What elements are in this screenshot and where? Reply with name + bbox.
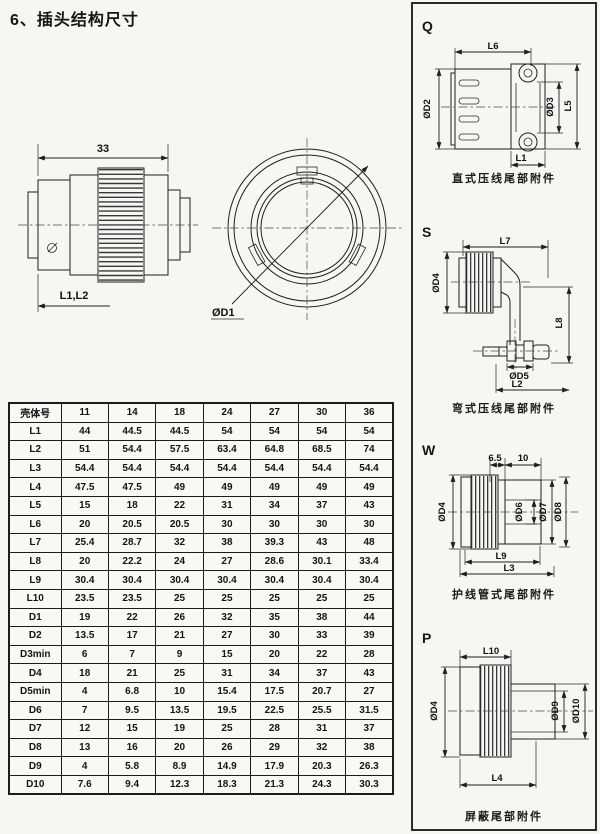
dimension-label: L6: [9, 515, 61, 534]
section-letter-p: P: [422, 630, 431, 646]
dimension-value: 49: [251, 478, 298, 497]
dimension-label: L3: [9, 459, 61, 478]
table-row: L354.454.454.454.454.454.454.4: [9, 459, 393, 478]
dimension-value: 27: [203, 627, 250, 646]
dimension-value: 27: [203, 552, 250, 571]
dim-label-l1l2: L1,L2: [60, 290, 89, 302]
dim-label-l3: L3: [503, 563, 514, 574]
dim-label-10: 10: [518, 453, 529, 464]
table-row: L515182231343743: [9, 496, 393, 515]
dimension-label: D3min: [9, 645, 61, 664]
dim-label-d4: ØD4: [431, 273, 442, 293]
dimension-value: 13.5: [156, 701, 203, 720]
dimension-value: 10: [156, 682, 203, 701]
dimension-value: 21: [156, 627, 203, 646]
dimension-value: 25: [203, 720, 250, 739]
dimension-value: 12.3: [156, 775, 203, 794]
dimension-value: 6: [61, 645, 108, 664]
dimension-value: 25: [203, 589, 250, 608]
dimension-label: D1: [9, 608, 61, 627]
dimension-value: 30.4: [203, 571, 250, 590]
dimension-value: 54.4: [346, 459, 393, 478]
dimension-value: 7: [108, 645, 155, 664]
dimension-value: 44.5: [156, 422, 203, 441]
dimension-label: L8: [9, 552, 61, 571]
dim-label-d2: ØD2: [422, 99, 433, 119]
dimension-value: 19: [156, 720, 203, 739]
straight-tail-drawing: L6 ØD2 ØD3 L5 L1: [413, 40, 597, 174]
dimension-value: 31: [203, 664, 250, 683]
dimension-value: 54: [298, 422, 345, 441]
dimension-value: 23.5: [108, 589, 155, 608]
dimension-value: 18.3: [203, 775, 250, 794]
dimension-value: 54: [251, 422, 298, 441]
dimension-label: L10: [9, 589, 61, 608]
caption-bent-tail: 弯式压线尾部附件: [413, 400, 595, 416]
column-header: 11: [61, 403, 108, 422]
dimension-value: 18: [61, 664, 108, 683]
dimension-value: 51: [61, 441, 108, 460]
dimension-value: 43: [346, 664, 393, 683]
bent-tail-drawing: L7 ØD4 L8 ØD5 L2: [413, 234, 597, 396]
table-row: L447.547.54949494949: [9, 478, 393, 497]
column-header: 30: [298, 403, 345, 422]
plug-side-view-drawing: 33 L1,L2: [12, 128, 212, 324]
dimension-value: 22: [108, 608, 155, 627]
dimension-value: 28: [251, 720, 298, 739]
dim-label-l5: L5: [563, 100, 574, 112]
dimension-value: 25: [346, 589, 393, 608]
dimension-label: D2: [9, 627, 61, 646]
dimension-label: D7: [9, 720, 61, 739]
column-header: 24: [203, 403, 250, 422]
dimension-value: 39.3: [251, 534, 298, 553]
dimension-value: 27: [346, 682, 393, 701]
dimension-value: 28.7: [108, 534, 155, 553]
dimension-value: 22.5: [251, 701, 298, 720]
dimension-label: L1: [9, 422, 61, 441]
dim-label-l7: L7: [499, 236, 510, 247]
dimension-value: 38: [298, 608, 345, 627]
dimension-value: 54.4: [61, 459, 108, 478]
dimension-value: 38: [203, 534, 250, 553]
dimension-value: 29: [251, 738, 298, 757]
dim-label-d4: ØD4: [437, 502, 448, 522]
dimension-value: 49: [346, 478, 393, 497]
dimension-value: 9.5: [108, 701, 155, 720]
tail-accessory-panel: Q L6 ØD2 ØD3 L5: [411, 2, 597, 831]
dimension-value: 31: [203, 496, 250, 515]
dimension-value: 24: [156, 552, 203, 571]
column-header: 18: [156, 403, 203, 422]
dimension-value: 17.9: [251, 757, 298, 776]
dimension-value: 37: [346, 720, 393, 739]
dim-label-l2: L2: [511, 379, 522, 390]
dimension-value: 30: [203, 515, 250, 534]
dimension-value: 20: [251, 645, 298, 664]
dimension-label: D5min: [9, 682, 61, 701]
dimension-value: 31: [298, 720, 345, 739]
dimension-value: 7.6: [61, 775, 108, 794]
dimension-value: 17: [108, 627, 155, 646]
dimension-value: 15: [108, 720, 155, 739]
dimension-label: D10: [9, 775, 61, 794]
dimension-value: 30.4: [108, 571, 155, 590]
dimension-value: 32: [156, 534, 203, 553]
dimension-value: 26: [203, 738, 250, 757]
table-row: D3min67915202228: [9, 645, 393, 664]
dimension-value: 8.9: [156, 757, 203, 776]
table-row: L14444.544.554545454: [9, 422, 393, 441]
dimension-value: 32: [203, 608, 250, 627]
dimension-value: 30: [298, 515, 345, 534]
dimension-value: 30: [251, 627, 298, 646]
polarity-mark: [48, 243, 58, 253]
dimension-value: 17.5: [251, 682, 298, 701]
dimension-value: 23.5: [61, 589, 108, 608]
table-row: L62020.520.530303030: [9, 515, 393, 534]
plug-front-view-drawing: ØD1: [210, 134, 402, 326]
dim-label-d4: ØD4: [429, 701, 440, 721]
dimension-value: 30.4: [156, 571, 203, 590]
dim-label-l4: L4: [491, 773, 503, 784]
dimension-value: 44.5: [108, 422, 155, 441]
dimension-value: 35: [251, 608, 298, 627]
table-row: D107.69.412.318.321.324.330.3: [9, 775, 393, 794]
dimension-value: 4: [61, 682, 108, 701]
dim-label-d9: ØD9: [550, 701, 561, 721]
dimension-value: 28.6: [251, 552, 298, 571]
dimension-value: 38: [346, 738, 393, 757]
dimension-label: L9: [9, 571, 61, 590]
dimension-value: 21.3: [251, 775, 298, 794]
dimension-value: 39: [346, 627, 393, 646]
dimension-value: 25: [156, 589, 203, 608]
caption-conduit-tail: 护线管式尾部附件: [413, 586, 595, 602]
dimension-value: 54.4: [251, 459, 298, 478]
column-header: 壳体号: [9, 403, 61, 422]
dimension-value: 13: [61, 738, 108, 757]
dimension-value: 34: [251, 496, 298, 515]
table-body: L14444.544.554545454L25154.457.563.464.8…: [9, 422, 393, 794]
dim-label-d6: ØD6: [514, 502, 525, 522]
dimension-value: 30.4: [298, 571, 345, 590]
table-row: D712151925283137: [9, 720, 393, 739]
table-row: L25154.457.563.464.868.574: [9, 441, 393, 460]
dimension-value: 43: [346, 496, 393, 515]
dim-label-d3: ØD3: [545, 97, 556, 117]
dimension-value: 32: [298, 738, 345, 757]
dimension-value: 47.5: [61, 478, 108, 497]
dimension-value: 68.5: [298, 441, 345, 460]
dimension-value: 5.8: [108, 757, 155, 776]
dim-label-l8: L8: [554, 317, 565, 328]
dimension-value: 54.4: [156, 459, 203, 478]
dimension-value: 22: [156, 496, 203, 515]
table-row: D813162026293238: [9, 738, 393, 757]
dimension-value: 31.5: [346, 701, 393, 720]
dimension-label: D4: [9, 664, 61, 683]
column-header: 36: [346, 403, 393, 422]
dimension-value: 25.4: [61, 534, 108, 553]
dimension-value: 54: [346, 422, 393, 441]
dimension-label: D9: [9, 757, 61, 776]
table-row: L82022.2242728.630.133.4: [9, 552, 393, 571]
shielded-tail-drawing: L10 ØD4 ØD9 ØD10 L4: [413, 645, 597, 797]
dimension-value: 54.4: [298, 459, 345, 478]
dimension-value: 54.4: [203, 459, 250, 478]
dimension-value: 9: [156, 645, 203, 664]
dim-label-33: 33: [97, 143, 109, 155]
dim-label-l10: L10: [483, 646, 499, 657]
dimension-value: 15: [61, 496, 108, 515]
dimension-value: 64.8: [251, 441, 298, 460]
dimension-value: 30.3: [346, 775, 393, 794]
dimension-value: 30.4: [251, 571, 298, 590]
dimension-label: D8: [9, 738, 61, 757]
table-row: L930.430.430.430.430.430.430.4: [9, 571, 393, 590]
dimension-value: 54.4: [108, 459, 155, 478]
dimension-value: 18: [108, 496, 155, 515]
table-header-row: 壳体号11141824273036: [9, 403, 393, 422]
dimension-value: 6.8: [108, 682, 155, 701]
dimension-value: 25: [298, 589, 345, 608]
dimension-value: 48: [346, 534, 393, 553]
dimension-value: 4: [61, 757, 108, 776]
dimension-value: 30: [251, 515, 298, 534]
dim-label-d7: ØD7: [538, 502, 549, 522]
dimension-value: 9.4: [108, 775, 155, 794]
dimension-value: 25.5: [298, 701, 345, 720]
dimension-value: 14.9: [203, 757, 250, 776]
dimension-value: 21: [108, 664, 155, 683]
conduit-tail-drawing: 6.5 10 ØD4 ØD6 ØD7 ØD8 L9: [413, 450, 597, 582]
dimension-value: 30.4: [61, 571, 108, 590]
column-header: 27: [251, 403, 298, 422]
dim-label-l9: L9: [495, 551, 506, 562]
dimension-value: 26: [156, 608, 203, 627]
dimension-value: 20.3: [298, 757, 345, 776]
dimension-value: 25: [251, 589, 298, 608]
dimension-value: 30: [346, 515, 393, 534]
dimension-value: 22.2: [108, 552, 155, 571]
dimension-value: 57.5: [156, 441, 203, 460]
dimension-value: 44: [61, 422, 108, 441]
dimension-value: 54.4: [108, 441, 155, 460]
dimension-value: 20: [61, 552, 108, 571]
table-row: L725.428.7323839.34348: [9, 534, 393, 553]
table-row: D5min46.81015.417.520.727: [9, 682, 393, 701]
dimension-value: 15.4: [203, 682, 250, 701]
dim-label-l6: L6: [487, 41, 498, 52]
dimension-label: D6: [9, 701, 61, 720]
dimension-value: 49: [298, 478, 345, 497]
dimension-value: 37: [298, 496, 345, 515]
dimension-value: 20.5: [156, 515, 203, 534]
dimension-value: 26.3: [346, 757, 393, 776]
caption-shielded-tail: 屏蔽尾部附件: [413, 808, 595, 824]
dimension-value: 33.4: [346, 552, 393, 571]
table-row: D418212531343743: [9, 664, 393, 683]
dimension-value: 22: [298, 645, 345, 664]
dimension-table: 壳体号11141824273036 L14444.544.554545454L2…: [8, 402, 394, 795]
dimension-value: 13.5: [61, 627, 108, 646]
dimension-label: L2: [9, 441, 61, 460]
table-row: D213.5172127303339: [9, 627, 393, 646]
dim-label-d8: ØD8: [553, 502, 564, 522]
dimension-value: 20: [156, 738, 203, 757]
dim-label-l1: L1: [515, 153, 527, 164]
dimension-value: 20.7: [298, 682, 345, 701]
dimension-value: 19: [61, 608, 108, 627]
dim-label-d10: ØD10: [571, 699, 582, 724]
dimension-value: 30.1: [298, 552, 345, 571]
table-row: D119222632353844: [9, 608, 393, 627]
dimension-value: 28: [346, 645, 393, 664]
dim-label-6-5: 6.5: [488, 453, 502, 464]
dimension-value: 33: [298, 627, 345, 646]
dimension-value: 20: [61, 515, 108, 534]
dimension-value: 47.5: [108, 478, 155, 497]
dimension-value: 63.4: [203, 441, 250, 460]
dimension-value: 19.5: [203, 701, 250, 720]
dimension-value: 43: [298, 534, 345, 553]
dim-label-d1: ØD1: [212, 307, 235, 319]
dimension-label: L4: [9, 478, 61, 497]
dimension-value: 20.5: [108, 515, 155, 534]
dimension-label: L7: [9, 534, 61, 553]
table-row: D679.513.519.522.525.531.5: [9, 701, 393, 720]
dimension-value: 30.4: [346, 571, 393, 590]
dimension-value: 74: [346, 441, 393, 460]
dimension-value: 34: [251, 664, 298, 683]
dimension-value: 16: [108, 738, 155, 757]
dimension-value: 15: [203, 645, 250, 664]
table-row: D945.88.914.917.920.326.3: [9, 757, 393, 776]
dimension-label: L5: [9, 496, 61, 515]
dimension-value: 12: [61, 720, 108, 739]
column-header: 14: [108, 403, 155, 422]
dimension-value: 37: [298, 664, 345, 683]
table-row: L1023.523.52525252525: [9, 589, 393, 608]
dimension-value: 49: [156, 478, 203, 497]
dimension-value: 25: [156, 664, 203, 683]
dimension-value: 49: [203, 478, 250, 497]
dimension-value: 44: [346, 608, 393, 627]
caption-straight-tail: 直式压线尾部附件: [413, 170, 595, 186]
dimension-value: 7: [61, 701, 108, 720]
section-letter-q: Q: [422, 18, 433, 34]
dimension-value: 24.3: [298, 775, 345, 794]
dimension-value: 54: [203, 422, 250, 441]
page-title: 6、插头结构尺寸: [10, 6, 139, 30]
